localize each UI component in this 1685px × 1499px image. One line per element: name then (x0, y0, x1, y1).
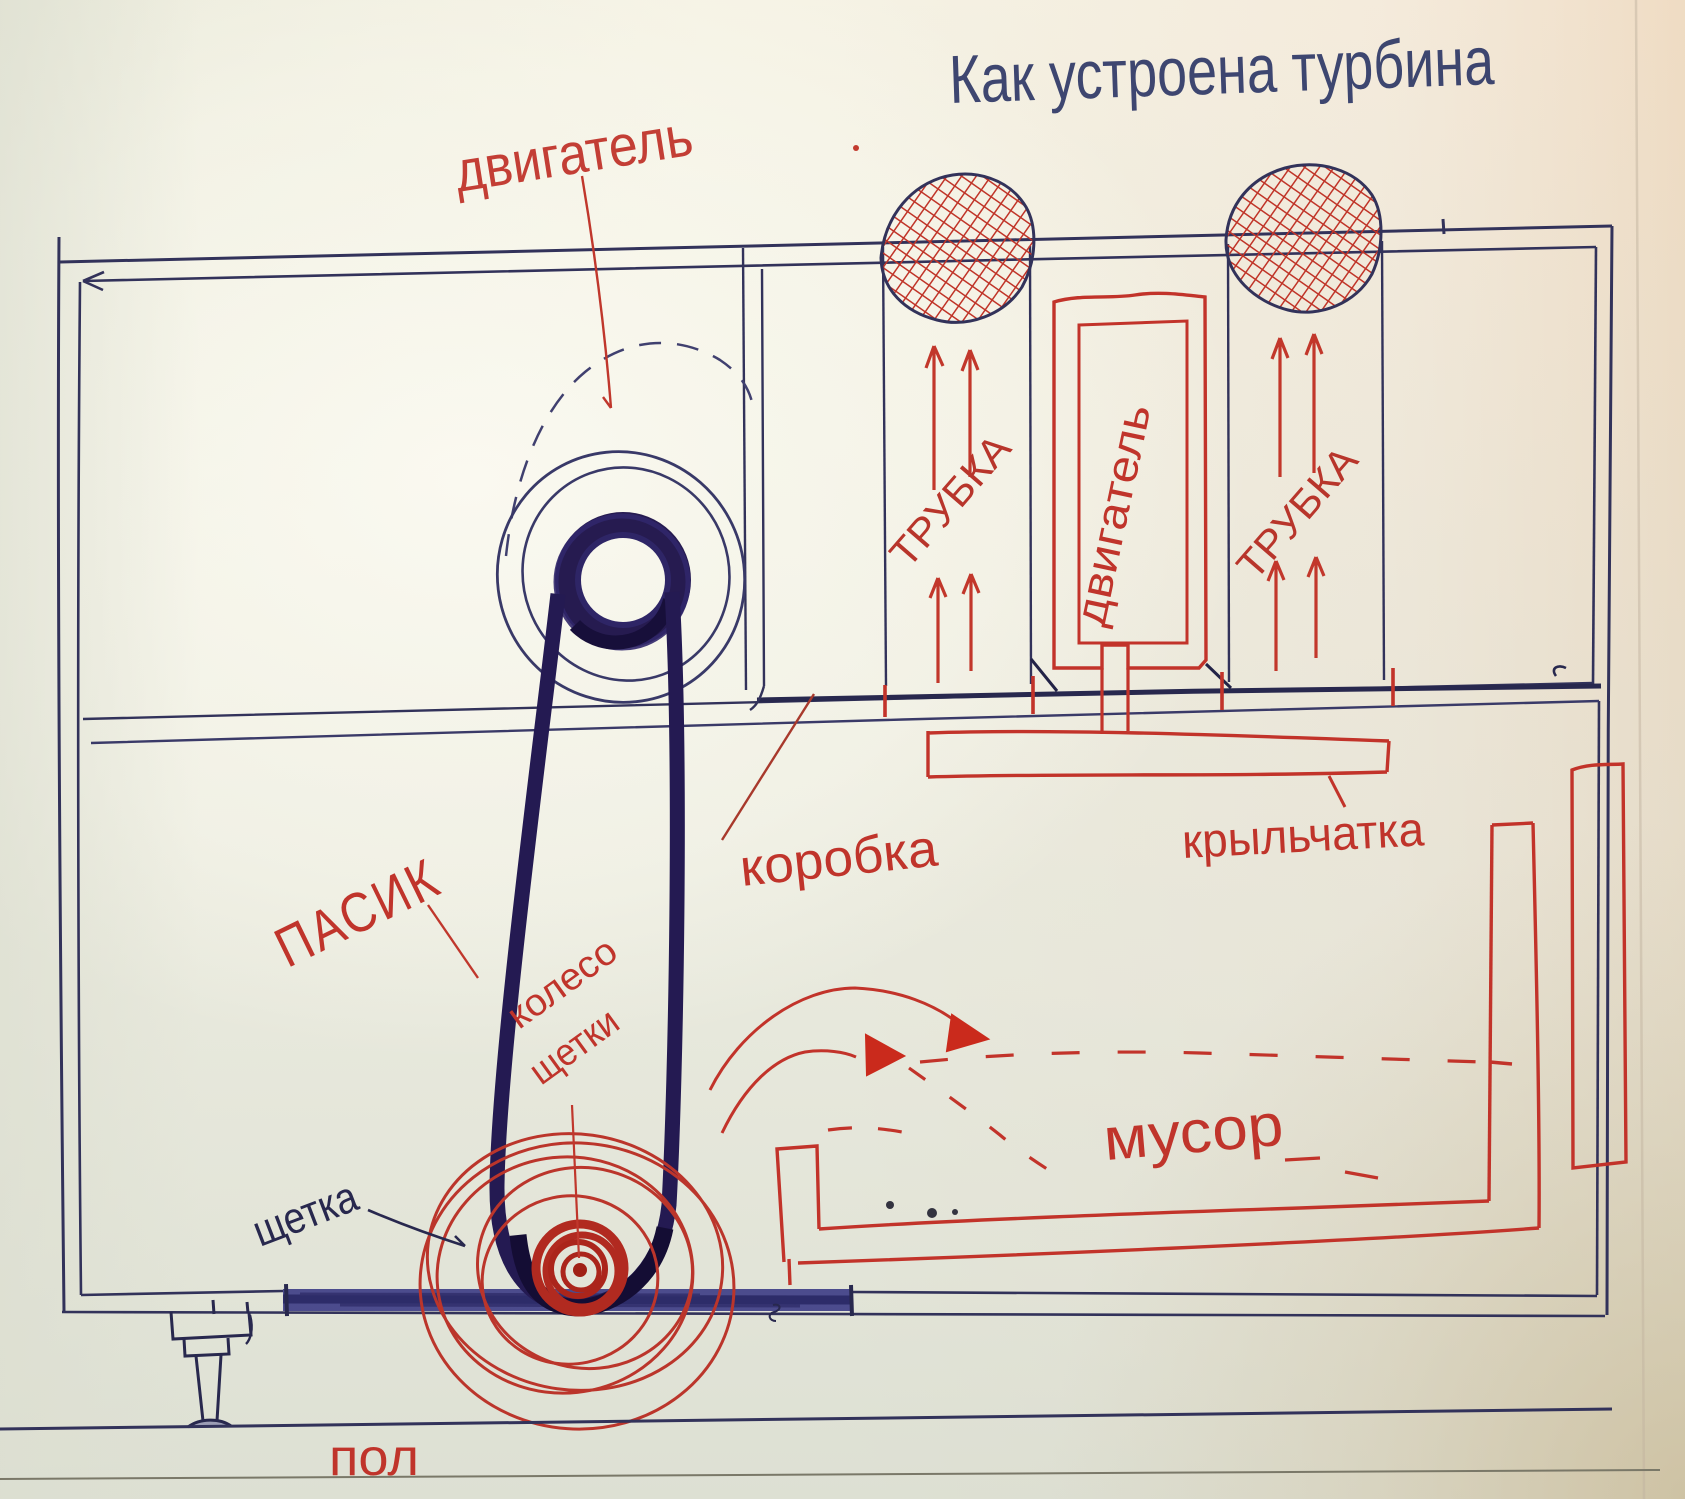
svg-text:пол: пол (329, 1429, 419, 1487)
